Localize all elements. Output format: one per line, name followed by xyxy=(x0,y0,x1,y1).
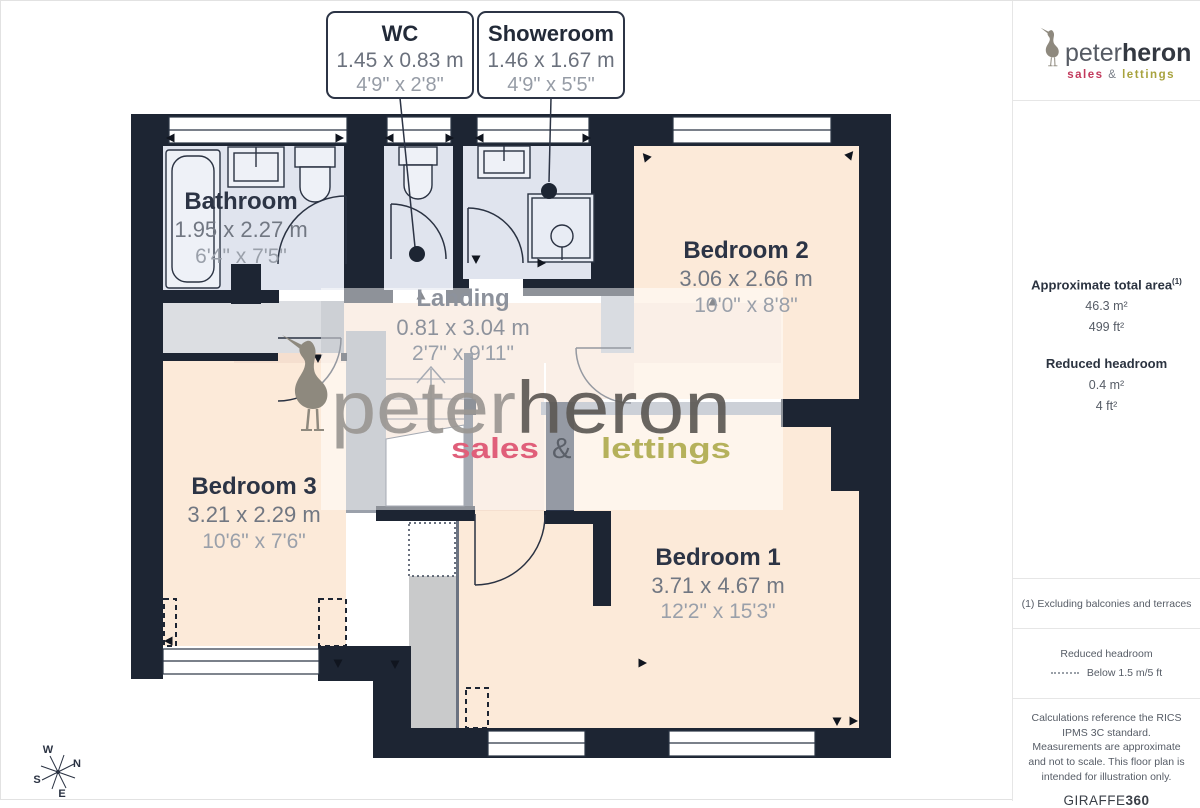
total-area-ft2: 499 ft² xyxy=(1089,320,1124,334)
total-area-label: Approximate total area(1) xyxy=(1031,277,1182,292)
window xyxy=(673,117,831,143)
sink xyxy=(478,146,530,178)
compass-s: S xyxy=(33,774,40,786)
svg-text:4'9" x 5'5": 4'9" x 5'5" xyxy=(507,74,594,96)
total-area-m2: 46.3 m² xyxy=(1085,299,1127,313)
shower-enclosure xyxy=(528,194,594,262)
svg-text:3.71 x 4.67 m: 3.71 x 4.67 m xyxy=(651,573,784,598)
callout-wc: WC 1.45 x 0.83 m 4'9" x 2'8" xyxy=(327,12,473,98)
window xyxy=(163,649,319,674)
svg-text:1.95 x 2.27 m: 1.95 x 2.27 m xyxy=(174,217,307,242)
room-label-bedroom3: Bedroom 3 3.21 x 2.29 m 10'6" x 7'6" xyxy=(187,473,320,553)
window xyxy=(669,731,815,756)
svg-text:WC: WC xyxy=(382,21,419,46)
footnote-text: (1) Excluding balconies and terraces xyxy=(1022,598,1192,610)
room-label-landing: Landing 0.81 x 3.04 m 2'7" x 9'11" xyxy=(396,285,529,365)
svg-text:0.81 x 3.04 m: 0.81 x 3.04 m xyxy=(396,315,529,340)
legend-title: Reduced headroom xyxy=(1060,648,1152,660)
svg-text:10'0" x 8'8": 10'0" x 8'8" xyxy=(694,294,798,317)
logo-section: peterheron sales & lettings xyxy=(1013,1,1200,101)
skylight xyxy=(409,523,455,576)
floorplan-canvas: peter heron sales & lettings Bathroom 1.… xyxy=(1,1,1011,801)
svg-text:Bedroom 1: Bedroom 1 xyxy=(655,544,780,571)
window xyxy=(488,731,585,756)
toilet xyxy=(295,147,335,202)
svg-text:3.06 x 2.66 m: 3.06 x 2.66 m xyxy=(679,266,812,291)
svg-text:Landing: Landing xyxy=(416,285,509,312)
giraffe360-brand: GIRAFFE360 xyxy=(1027,793,1186,808)
footnote-section: (1) Excluding balconies and terraces xyxy=(1013,579,1200,629)
window xyxy=(169,117,347,143)
floorplan-page: peter heron sales & lettings Bathroom 1.… xyxy=(0,0,1200,800)
footnote-marker: (1) xyxy=(1172,277,1182,286)
svg-text:Showeroom: Showeroom xyxy=(488,21,614,46)
brand-tagline: sales & lettings xyxy=(1067,69,1175,81)
room-label-bedroom1: Bedroom 1 3.71 x 4.67 m 12'2" x 15'3" xyxy=(651,544,784,623)
reduced-headroom-m2: 0.4 m² xyxy=(1089,378,1124,392)
dashed-line-icon xyxy=(1051,672,1079,674)
room-label-bedroom2: Bedroom 2 3.06 x 2.66 m 10'0" x 8'8" xyxy=(679,237,812,317)
callout-showeroom: Showeroom 1.46 x 1.67 m 4'9" x 5'5" xyxy=(478,12,624,98)
watermark-lettings: lettings xyxy=(601,433,731,465)
compass-rose: W N S E xyxy=(33,744,81,800)
legend-value: Below 1.5 m/5 ft xyxy=(1087,667,1162,679)
disclaimer-section: Calculations reference the RICS IPMS 3C … xyxy=(1013,699,1200,801)
compass-w: W xyxy=(43,744,54,756)
area-section: Approximate total area(1) 46.3 m² 499 ft… xyxy=(1013,101,1200,579)
reduced-headroom-ft2: 4 ft² xyxy=(1096,399,1118,413)
toilet xyxy=(399,147,437,199)
svg-text:6'4" x 7'5": 6'4" x 7'5" xyxy=(195,245,287,268)
reduced-headroom-label: Reduced headroom xyxy=(1046,356,1167,371)
heron-logo-icon xyxy=(1041,28,1059,66)
svg-text:10'6" x 7'6": 10'6" x 7'6" xyxy=(202,530,306,553)
svg-text:Bathroom: Bathroom xyxy=(184,188,297,215)
svg-text:Bedroom 3: Bedroom 3 xyxy=(191,473,316,500)
watermark: peter heron sales & lettings xyxy=(282,288,783,510)
svg-text:4'9" x 2'8": 4'9" x 2'8" xyxy=(356,74,443,96)
window xyxy=(477,117,589,143)
svg-text:12'2" x 15'3": 12'2" x 15'3" xyxy=(660,600,775,623)
compass-e: E xyxy=(58,788,65,800)
compass-n: N xyxy=(73,758,81,770)
svg-text:2'7" x 9'11": 2'7" x 9'11" xyxy=(412,342,514,365)
svg-text:1.45 x 0.83 m: 1.45 x 0.83 m xyxy=(336,49,463,72)
svg-text:Bedroom 2: Bedroom 2 xyxy=(683,237,808,264)
brand-name: peterheron xyxy=(1065,39,1191,67)
info-sidebar: peterheron sales & lettings Approximate … xyxy=(1012,1,1200,801)
svg-text:1.46 x 1.67 m: 1.46 x 1.67 m xyxy=(487,49,614,72)
sink xyxy=(228,147,284,187)
disclaimer-text: Calculations reference the RICS IPMS 3C … xyxy=(1027,711,1186,784)
svg-text:3.21 x 2.29 m: 3.21 x 2.29 m xyxy=(187,502,320,527)
eaves-strip xyxy=(409,576,456,728)
watermark-amp: & xyxy=(552,433,571,465)
window xyxy=(387,117,451,143)
legend-section: Reduced headroom Below 1.5 m/5 ft xyxy=(1013,629,1200,699)
brand-logo: peterheron sales & lettings xyxy=(1013,1,1199,100)
watermark-sales: sales xyxy=(451,433,539,465)
